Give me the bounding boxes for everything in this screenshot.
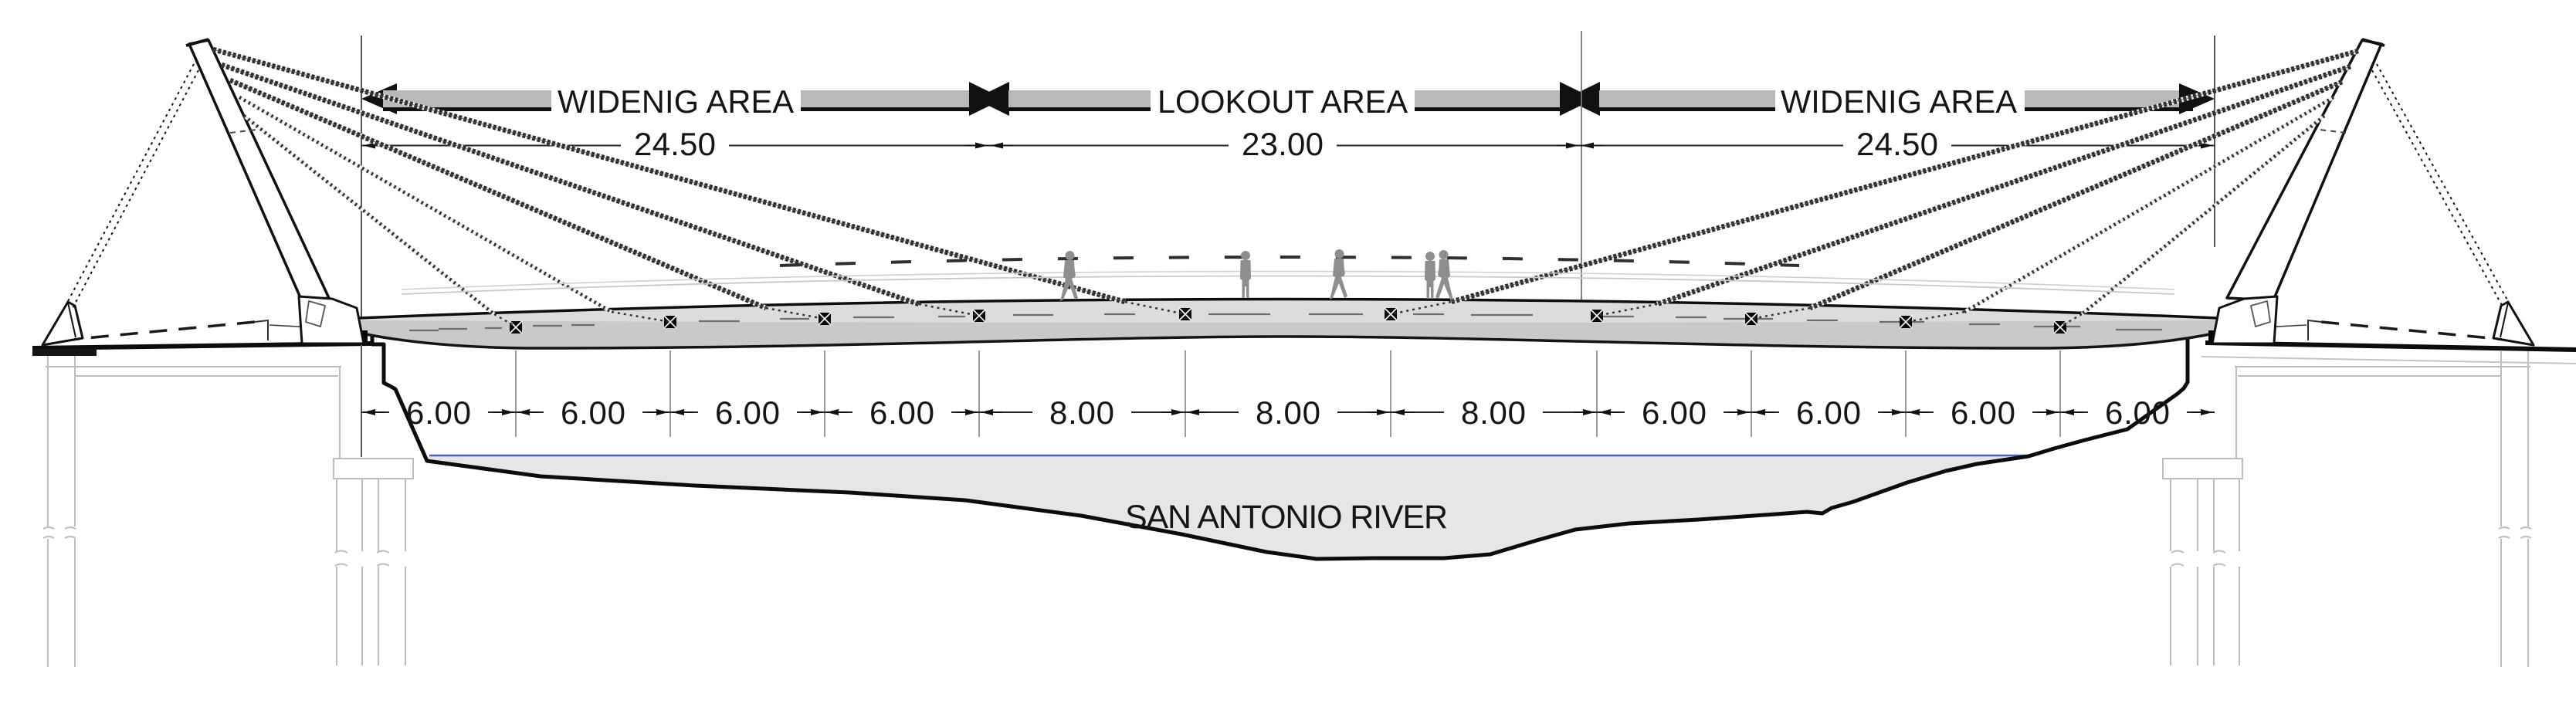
svg-text:23.00: 23.00	[1242, 126, 1324, 162]
svg-text:8.00: 8.00	[1049, 394, 1114, 431]
svg-text:6.00: 6.00	[2105, 394, 2170, 431]
svg-text:WIDENIG AREA: WIDENIG AREA	[558, 83, 794, 120]
svg-text:6.00: 6.00	[1796, 394, 1861, 431]
svg-text:6.00: 6.00	[715, 394, 780, 431]
svg-text:6.00: 6.00	[406, 394, 471, 431]
svg-text:6.00: 6.00	[1951, 394, 2015, 431]
svg-text:24.50: 24.50	[1856, 126, 1938, 162]
svg-text:8.00: 8.00	[1256, 394, 1320, 431]
svg-text:6.00: 6.00	[1642, 394, 1707, 431]
svg-text:8.00: 8.00	[1461, 394, 1526, 431]
svg-text:6.00: 6.00	[869, 394, 934, 431]
svg-text:24.50: 24.50	[634, 126, 716, 162]
svg-text:SAN ANTONIO RIVER: SAN ANTONIO RIVER	[1125, 499, 1448, 536]
svg-text:LOOKOUT AREA: LOOKOUT AREA	[1158, 83, 1408, 120]
svg-text:WIDENIG AREA: WIDENIG AREA	[1781, 83, 2017, 120]
svg-text:6.00: 6.00	[561, 394, 625, 431]
